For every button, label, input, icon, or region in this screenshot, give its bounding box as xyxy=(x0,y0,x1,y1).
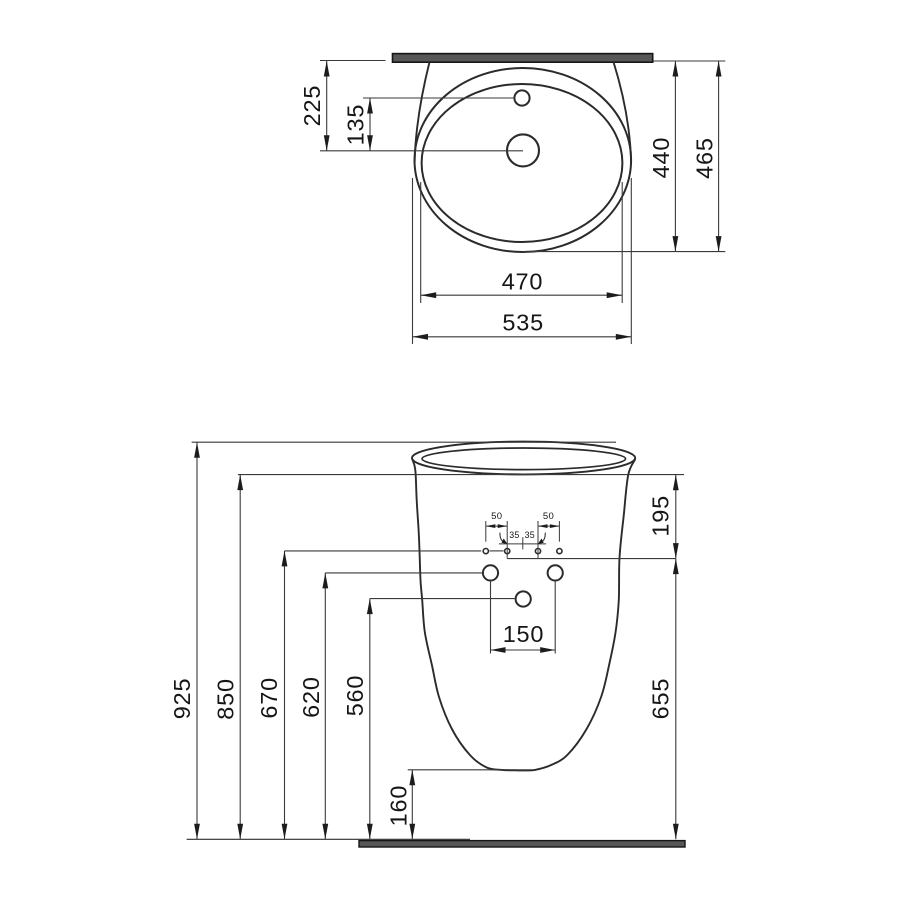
svg-text:35: 35 xyxy=(509,530,519,540)
svg-text:440: 440 xyxy=(648,137,674,179)
svg-text:560: 560 xyxy=(342,675,368,717)
svg-text:195: 195 xyxy=(647,495,673,537)
svg-text:50: 50 xyxy=(491,511,502,522)
svg-text:35: 35 xyxy=(525,530,535,540)
svg-text:50: 50 xyxy=(543,511,554,522)
svg-text:620: 620 xyxy=(298,676,324,718)
svg-text:655: 655 xyxy=(647,678,673,720)
svg-text:535: 535 xyxy=(502,309,544,335)
svg-text:470: 470 xyxy=(502,269,544,295)
svg-text:465: 465 xyxy=(692,137,718,179)
svg-text:225: 225 xyxy=(299,85,325,127)
svg-text:850: 850 xyxy=(213,678,239,720)
svg-text:670: 670 xyxy=(256,677,282,719)
svg-text:135: 135 xyxy=(343,104,369,146)
svg-text:160: 160 xyxy=(386,785,412,827)
svg-text:925: 925 xyxy=(169,678,195,720)
svg-text:150: 150 xyxy=(503,621,545,647)
